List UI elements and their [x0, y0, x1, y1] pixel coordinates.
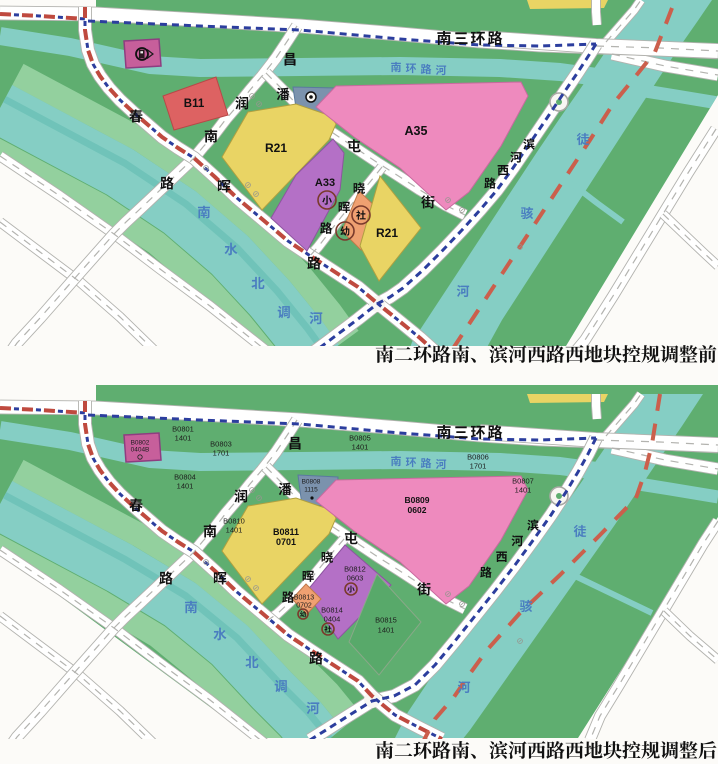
- svg-text:1401: 1401: [352, 443, 369, 452]
- svg-text:A35: A35: [405, 124, 428, 138]
- svg-text:B0814: B0814: [321, 606, 343, 615]
- svg-text:0603: 0603: [347, 574, 364, 583]
- svg-text:B0810: B0810: [223, 517, 245, 526]
- svg-text:1701: 1701: [470, 462, 487, 471]
- svg-text:0602: 0602: [408, 505, 427, 515]
- svg-text:1401: 1401: [515, 486, 532, 495]
- svg-text:B0805: B0805: [349, 434, 371, 443]
- svg-text:1401: 1401: [378, 626, 395, 635]
- svg-text:B0815: B0815: [375, 616, 397, 625]
- svg-text:B0808: B0808: [302, 478, 321, 485]
- svg-text:0404B: 0404B: [131, 446, 150, 453]
- svg-text:R21: R21: [376, 226, 398, 240]
- svg-text:B0803: B0803: [210, 440, 232, 449]
- svg-text:0404: 0404: [324, 615, 341, 624]
- svg-text:1401: 1401: [177, 482, 194, 491]
- svg-text:B0812: B0812: [344, 565, 366, 574]
- svg-text:R21: R21: [265, 141, 287, 155]
- svg-text:B0802: B0802: [131, 439, 150, 446]
- svg-text:B0801: B0801: [172, 425, 194, 434]
- svg-text:B0804: B0804: [174, 473, 196, 482]
- svg-text:B0806: B0806: [467, 453, 489, 462]
- svg-text:B0811: B0811: [273, 527, 299, 537]
- svg-text:B11: B11: [184, 98, 205, 110]
- svg-text:0701: 0701: [276, 537, 296, 547]
- svg-text:1115: 1115: [304, 486, 318, 493]
- svg-text:1401: 1401: [226, 526, 243, 535]
- svg-text:1701: 1701: [213, 449, 230, 458]
- svg-text:B0809: B0809: [404, 495, 429, 505]
- svg-text:1401: 1401: [175, 434, 192, 443]
- svg-text:A33: A33: [315, 177, 335, 189]
- svg-text:B0807: B0807: [512, 477, 534, 486]
- svg-text:B0813: B0813: [294, 595, 314, 602]
